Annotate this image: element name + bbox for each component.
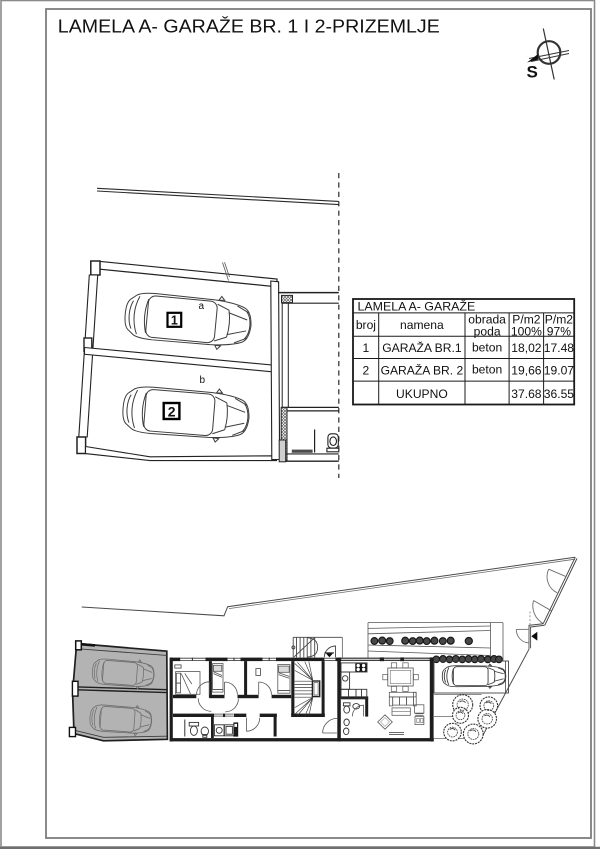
svg-text:1: 1 <box>363 341 370 355</box>
svg-text:36.55: 36.55 <box>544 387 575 401</box>
svg-text:1: 1 <box>171 313 178 327</box>
svg-text:2: 2 <box>168 403 176 419</box>
svg-text:broj: broj <box>356 318 376 332</box>
svg-text:LAMELA A- GARAŽE: LAMELA A- GARAŽE <box>358 298 476 313</box>
svg-text:a: a <box>199 301 205 312</box>
svg-text:2: 2 <box>363 363 370 377</box>
svg-text:namena: namena <box>400 318 444 332</box>
svg-text:beton: beton <box>472 362 502 376</box>
svg-text:19,66: 19,66 <box>511 363 542 377</box>
svg-text:poda: poda <box>474 324 501 338</box>
svg-text:19.07: 19.07 <box>544 363 575 377</box>
svg-text:beton: beton <box>472 340 502 354</box>
svg-text:LAMELA A- GARAŽE BR. 1 I 2-PRI: LAMELA A- GARAŽE BR. 1 I 2-PRIZEMLJE <box>58 16 440 37</box>
svg-text:UKUPNO: UKUPNO <box>396 387 448 401</box>
svg-text:18,02: 18,02 <box>511 341 542 355</box>
svg-text:GARAŽA BR. 2: GARAŽA BR. 2 <box>381 362 464 377</box>
svg-text:37.68: 37.68 <box>511 387 542 401</box>
svg-text:GARAŽA BR.1: GARAŽA BR.1 <box>382 340 462 355</box>
svg-text:97%: 97% <box>547 324 571 338</box>
svg-text:17.48: 17.48 <box>544 341 575 355</box>
svg-text:S: S <box>527 63 538 82</box>
svg-text:100%: 100% <box>511 324 542 338</box>
svg-text:b: b <box>200 375 206 386</box>
